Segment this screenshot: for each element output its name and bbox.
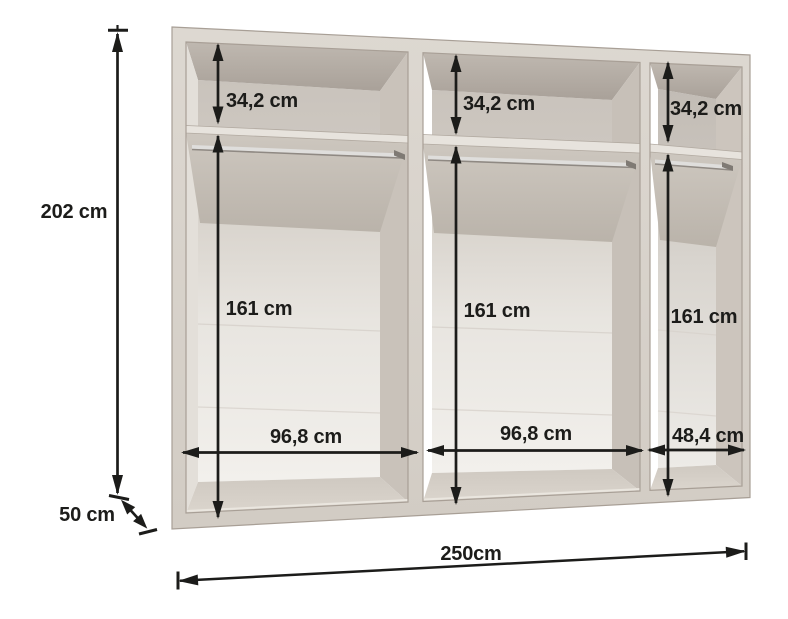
width-3-label: 48,4 cm [672, 425, 744, 447]
arrowhead-up [112, 32, 123, 52]
hanging-3-label: 161 cm [671, 306, 738, 328]
top-section-2-label: 34,2 cm [463, 93, 535, 115]
arrowhead-down [112, 475, 123, 495]
wardrobe-dimension-diagram: 202 cm 50 cm 34,2 cm 34,2 cm 34,2 cm 161… [0, 0, 788, 619]
dimension-depth [121, 500, 157, 534]
width-1-label: 96,8 cm [270, 426, 342, 448]
width-2-label: 96,8 cm [500, 423, 572, 445]
dimension-end-tick [109, 496, 129, 500]
compartment-1-left-wall [186, 42, 198, 513]
hanging-1-label: 161 cm [226, 298, 293, 320]
compartment-1-right-wall [380, 52, 408, 502]
compartment-3-right-wall [716, 67, 742, 486]
compartment-2-right-wall [612, 62, 640, 491]
dimension-total-height [108, 25, 129, 500]
total-width-label: 250cm [440, 543, 501, 565]
top-section-1-label: 34,2 cm [226, 90, 298, 112]
depth-label: 50 cm [59, 504, 115, 526]
wardrobe-drawing: 202 cm 50 cm 34,2 cm 34,2 cm 34,2 cm 161… [0, 0, 788, 619]
total-height-label: 202 cm [41, 201, 108, 223]
top-section-3-label: 34,2 cm [670, 98, 742, 120]
hanging-2-label: 161 cm [464, 300, 531, 322]
dimension-end-tick [139, 530, 157, 535]
